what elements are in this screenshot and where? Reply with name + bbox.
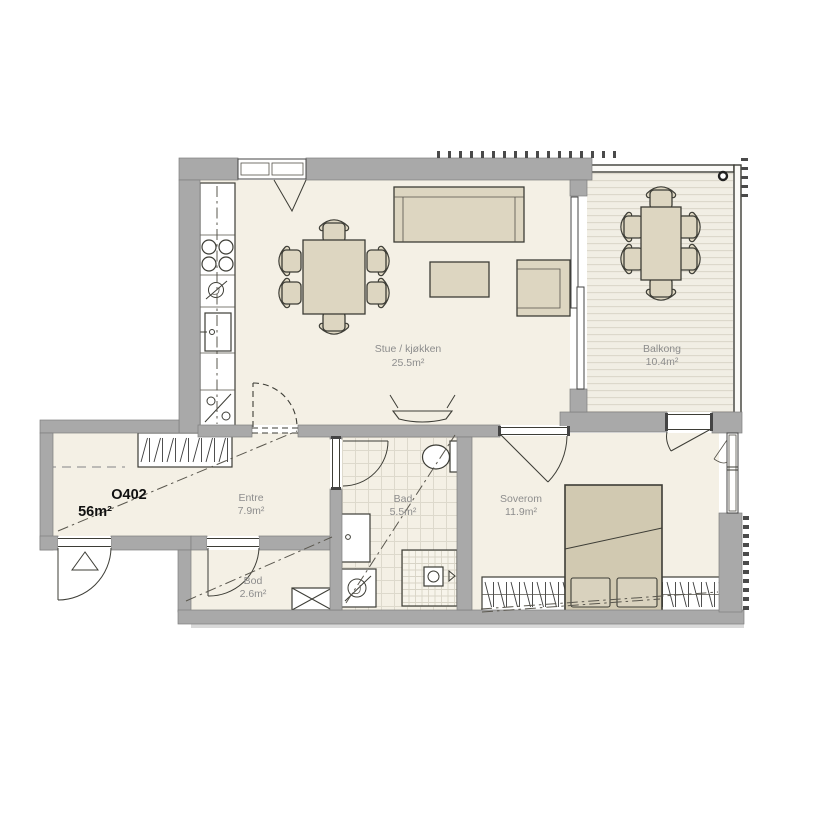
bod-label: Bod bbox=[244, 575, 263, 587]
bedroom-window bbox=[727, 433, 738, 513]
wall-segment bbox=[178, 610, 744, 624]
balcony-railing-right bbox=[734, 165, 741, 425]
double-bed bbox=[565, 485, 662, 612]
bathroom-sink-icon bbox=[339, 514, 370, 562]
bod-features bbox=[292, 588, 332, 610]
entre-area: 7.9m² bbox=[238, 505, 265, 517]
wall-segment bbox=[198, 425, 252, 437]
balcony-table bbox=[641, 207, 681, 280]
coffee-table bbox=[430, 262, 489, 297]
balcony-railing-top bbox=[587, 165, 734, 172]
wall-segment bbox=[560, 412, 667, 432]
bedroom-door-opening bbox=[498, 426, 570, 436]
bad-label: Bad bbox=[394, 493, 413, 505]
stue-area: 25.5m² bbox=[392, 357, 425, 369]
sofa bbox=[394, 187, 524, 242]
wall-segment bbox=[178, 550, 191, 612]
wall-segment bbox=[179, 158, 238, 180]
kitchen-counter bbox=[200, 183, 235, 427]
bod-door-opening bbox=[207, 537, 259, 549]
bod-area: 2.6m² bbox=[240, 588, 267, 600]
water-heater-icon bbox=[292, 588, 332, 610]
wall-segment bbox=[719, 513, 742, 612]
soverom-area: 11.9m² bbox=[505, 506, 537, 518]
bathroom-door-opening bbox=[331, 436, 341, 490]
kitchen-sink-icon bbox=[200, 313, 231, 351]
wall-segment bbox=[40, 536, 58, 550]
balcony-sliding-door bbox=[571, 197, 584, 389]
floor-plan-drawing: Stue / kjøkken 25.5m² Balkong 10.4m² Sov… bbox=[0, 0, 817, 817]
entre-label: Entre bbox=[238, 492, 263, 504]
dining-table bbox=[303, 240, 365, 314]
balcony-light-icon bbox=[719, 172, 727, 180]
bad-area: 5.5m² bbox=[390, 506, 417, 518]
wall-segment bbox=[111, 536, 191, 550]
balcony-door-opening bbox=[665, 413, 713, 431]
wall-segment bbox=[40, 433, 53, 550]
floor-plan-page: Stue / kjøkken 25.5m² Balkong 10.4m² Sov… bbox=[0, 0, 817, 817]
wall-segment bbox=[298, 425, 500, 437]
wall-segment bbox=[570, 180, 587, 196]
wardrobe-right bbox=[662, 577, 722, 612]
wall-segment bbox=[457, 437, 472, 610]
balkong-label: Balkong bbox=[643, 343, 681, 355]
wall-segment bbox=[306, 158, 592, 180]
unit-area-label: 56m² bbox=[78, 504, 112, 520]
entrance-marker-triangle bbox=[72, 552, 98, 570]
wall-segment bbox=[570, 389, 587, 412]
armchair bbox=[517, 260, 570, 316]
washing-machine-icon bbox=[339, 569, 376, 607]
wall-segment bbox=[330, 489, 342, 610]
entrance-door-opening bbox=[58, 537, 111, 549]
entrance-door-swing bbox=[58, 548, 111, 600]
balkong-area: 10.4m² bbox=[646, 356, 679, 368]
stue-label: Stue / kjøkken bbox=[375, 343, 442, 355]
entre-wardrobe bbox=[138, 433, 232, 467]
wall-segment bbox=[40, 420, 179, 433]
pillow bbox=[617, 578, 657, 607]
wall-segment bbox=[179, 180, 200, 433]
soverom-label: Soverom bbox=[500, 493, 542, 505]
wall-segment bbox=[191, 536, 207, 550]
shower-icon bbox=[402, 550, 457, 606]
unit-id-label: O402 bbox=[111, 487, 146, 503]
wall-segment bbox=[712, 412, 742, 433]
